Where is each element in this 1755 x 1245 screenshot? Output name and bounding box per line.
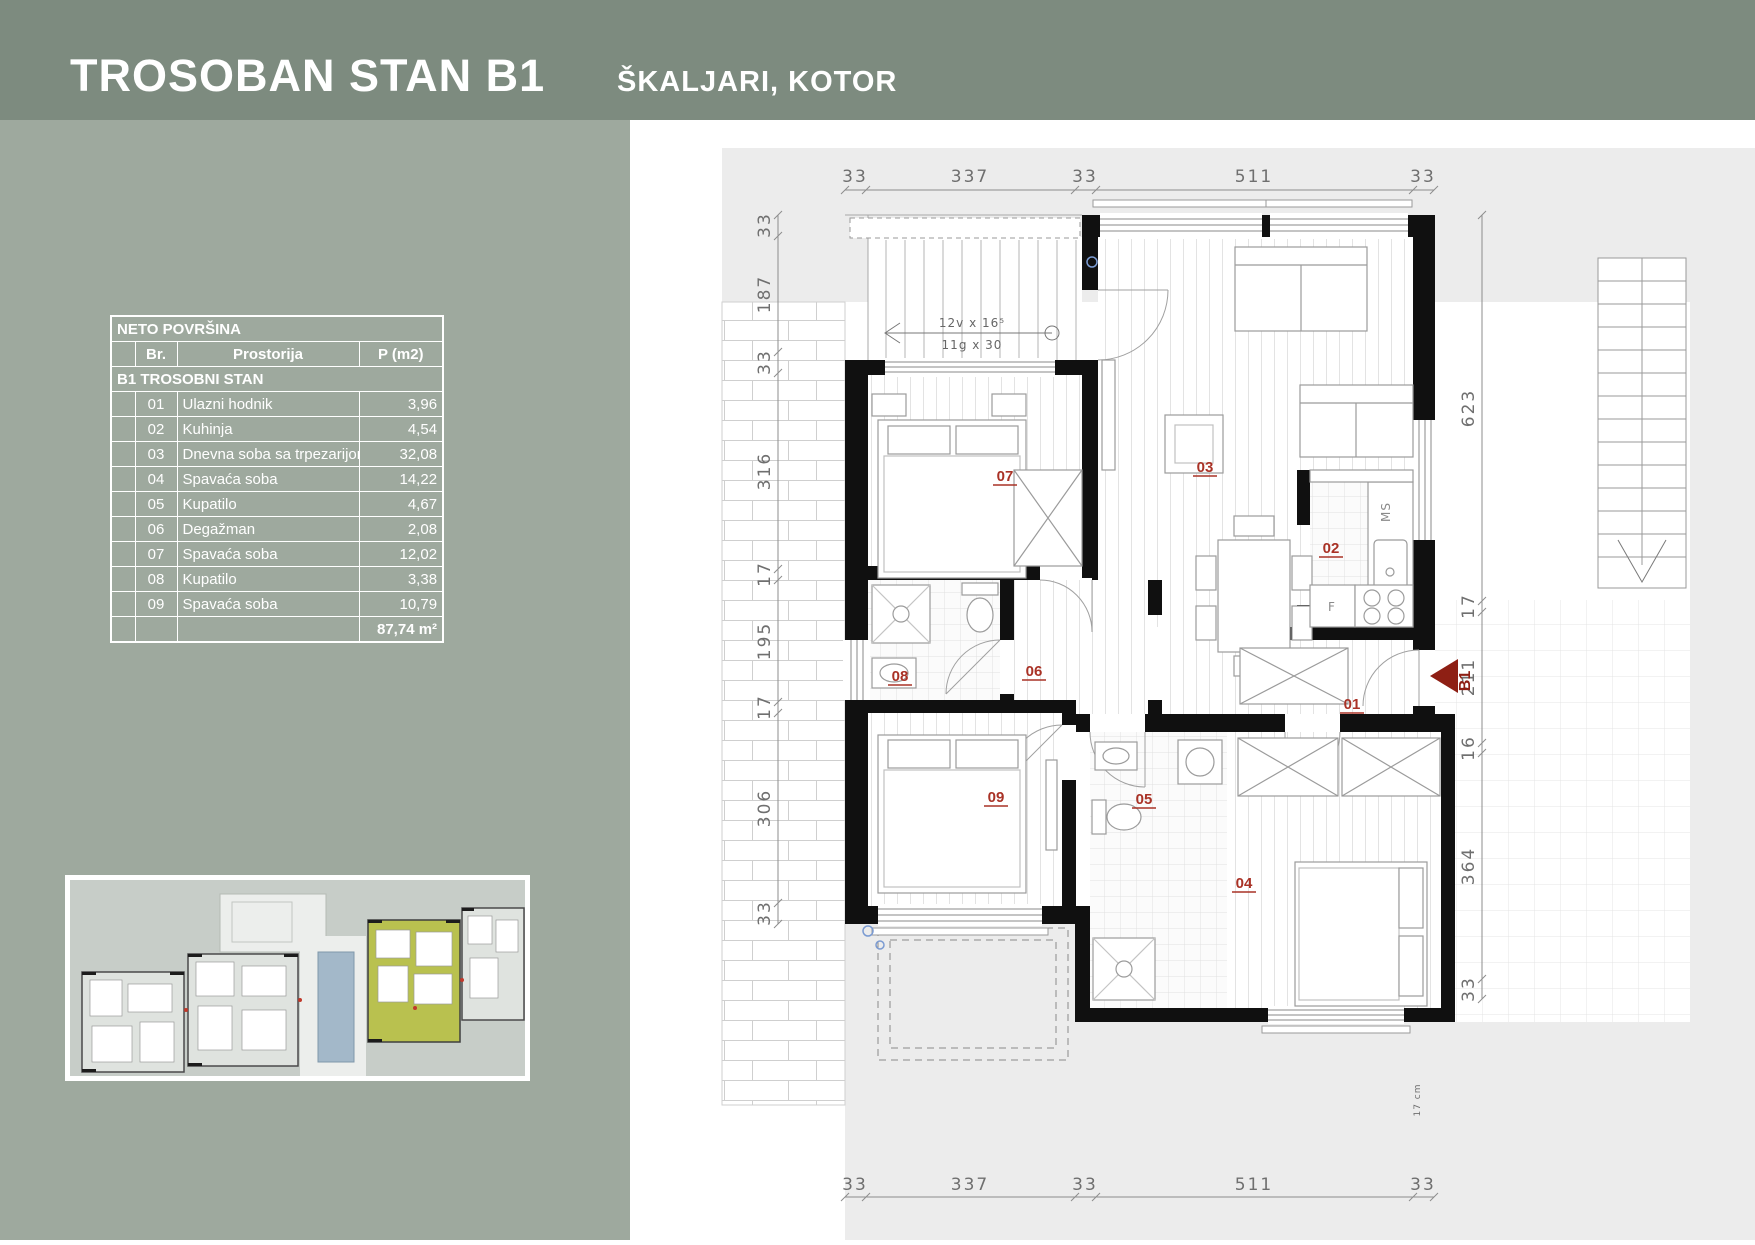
table-row: 02Kuhinja4,54 — [111, 417, 443, 442]
total-area: 87,74 m² — [359, 617, 443, 643]
col-area: P (m2) — [359, 342, 443, 367]
dim-label: 33 — [755, 349, 775, 375]
table-title: NETO POVRŠINA — [111, 316, 443, 342]
col-room: Prostorija — [177, 342, 359, 367]
shower-icon — [872, 585, 930, 643]
dim-label: 33 — [1410, 1175, 1436, 1195]
table-section-row: B1 TROSOBNI STAN — [111, 367, 443, 392]
section-label: B1 TROSOBNI STAN — [111, 367, 443, 392]
fridge-label: F — [1328, 600, 1336, 614]
dim-label: 306 — [755, 789, 775, 827]
bed-icon — [872, 394, 1026, 578]
room-label-04: 04 — [1236, 875, 1253, 892]
window-sill — [1262, 1026, 1410, 1033]
dim-label: 33 — [842, 1175, 868, 1195]
lounge-chair-icon — [1300, 385, 1413, 457]
table-title-row: NETO POVRŠINA — [111, 316, 443, 342]
header-band: TROSOBAN STAN B1 ŠKALJARI, KOTOR — [0, 0, 1755, 120]
table-row: 05Kupatilo4,67 — [111, 492, 443, 517]
table-row: 08Kupatilo3,38 — [111, 567, 443, 592]
dim-label: 33 — [1072, 1175, 1098, 1195]
room-label-08: 08 — [892, 668, 909, 685]
dim-label: 17 — [755, 561, 775, 587]
floor-plan-area: 33 337 33 511 33 33 337 33 511 33 33 187… — [630, 120, 1755, 1240]
dim-label: 17 — [1459, 593, 1479, 619]
dim-label: 33 — [755, 900, 775, 926]
ms-label: MS — [1379, 502, 1393, 522]
exterior-staircase — [1598, 258, 1686, 588]
area-table: NETO POVRŠINA Br. Prostorija P (m2) B1 T… — [110, 315, 444, 643]
tv-board — [1102, 360, 1115, 470]
unit-b1-highlight — [368, 920, 460, 1042]
dim-label: 364 — [1459, 847, 1479, 885]
window-sill — [1093, 200, 1269, 207]
dim-label: 33 — [1072, 167, 1098, 187]
room-label-06: 06 — [1026, 663, 1043, 680]
room-label-09: 09 — [988, 789, 1005, 806]
dim-label: 337 — [951, 167, 989, 187]
dim-label: 187 — [755, 275, 775, 313]
dim-note: 17 cm — [1413, 1083, 1423, 1116]
dim-label: 33 — [1459, 976, 1479, 1002]
dim-label: 511 — [1235, 167, 1273, 187]
room-label-01: 01 — [1344, 696, 1361, 713]
dim-label: 337 — [951, 1175, 989, 1195]
room-label-07: 07 — [997, 468, 1014, 485]
sink-icon — [1095, 742, 1137, 770]
unit-marker-label: B1 — [1457, 671, 1474, 692]
dim-label: 316 — [755, 452, 775, 490]
room-label-03: 03 — [1197, 459, 1214, 476]
dim-label: 17 — [755, 694, 775, 720]
dim-label: 511 — [1235, 1175, 1273, 1195]
room-label-02: 02 — [1323, 540, 1340, 557]
table-row: 09Spavaća soba10,79 — [111, 592, 443, 617]
coffee-table-icon — [1165, 415, 1223, 473]
stair-annotation: 11g x 30 — [942, 338, 1003, 352]
wardrobe-icon — [1014, 470, 1082, 566]
sofa-icon — [1235, 247, 1367, 331]
site-plan-svg — [70, 880, 525, 1076]
washing-machine-icon — [1178, 740, 1222, 784]
window-sill — [872, 928, 1048, 935]
table-row: 07Spavaća soba12,02 — [111, 542, 443, 567]
left-panel: NETO POVRŠINA Br. Prostorija P (m2) B1 T… — [0, 120, 630, 1240]
bed-icon — [1295, 862, 1427, 1006]
pool-court — [300, 936, 366, 1076]
page: { "header": { "title": "TROSOBAN STAN B1… — [0, 0, 1755, 1240]
table-row: 01Ulazni hodnik3,96 — [111, 392, 443, 417]
pool — [318, 952, 354, 1062]
dim-label: 33 — [842, 167, 868, 187]
page-subtitle: ŠKALJARI, KOTOR — [617, 66, 897, 99]
stair-annotation: 12v x 16⁵ — [939, 316, 1005, 330]
hall-closet-icon — [1240, 648, 1348, 704]
table-header-row: Br. Prostorija P (m2) — [111, 342, 443, 367]
stove-box — [1355, 585, 1413, 627]
table-row: 03Dnevna soba sa trpezarijom32,08 — [111, 442, 443, 467]
table-total-row: 87,74 m² — [111, 617, 443, 643]
dim-label: 195 — [755, 622, 775, 660]
stone-wall-texture — [722, 302, 845, 1105]
dim-label: 16 — [1459, 735, 1479, 761]
shower-icon — [1093, 938, 1155, 1000]
floor-plan: 33 337 33 511 33 33 337 33 511 33 33 187… — [630, 120, 1755, 1240]
page-title: TROSOBAN STAN B1 — [70, 50, 545, 102]
col-br: Br. — [135, 342, 177, 367]
dim-label: 33 — [1410, 167, 1436, 187]
col-spacer — [111, 342, 135, 367]
table-row: 04Spavaća soba14,22 — [111, 467, 443, 492]
window-sill — [1266, 200, 1412, 207]
dim-label: 623 — [1459, 389, 1479, 427]
dim-label: 33 — [755, 212, 775, 238]
site-plan-thumbnail — [65, 875, 530, 1081]
room-label-05: 05 — [1136, 791, 1153, 808]
table-row: 06Degažman2,08 — [111, 517, 443, 542]
